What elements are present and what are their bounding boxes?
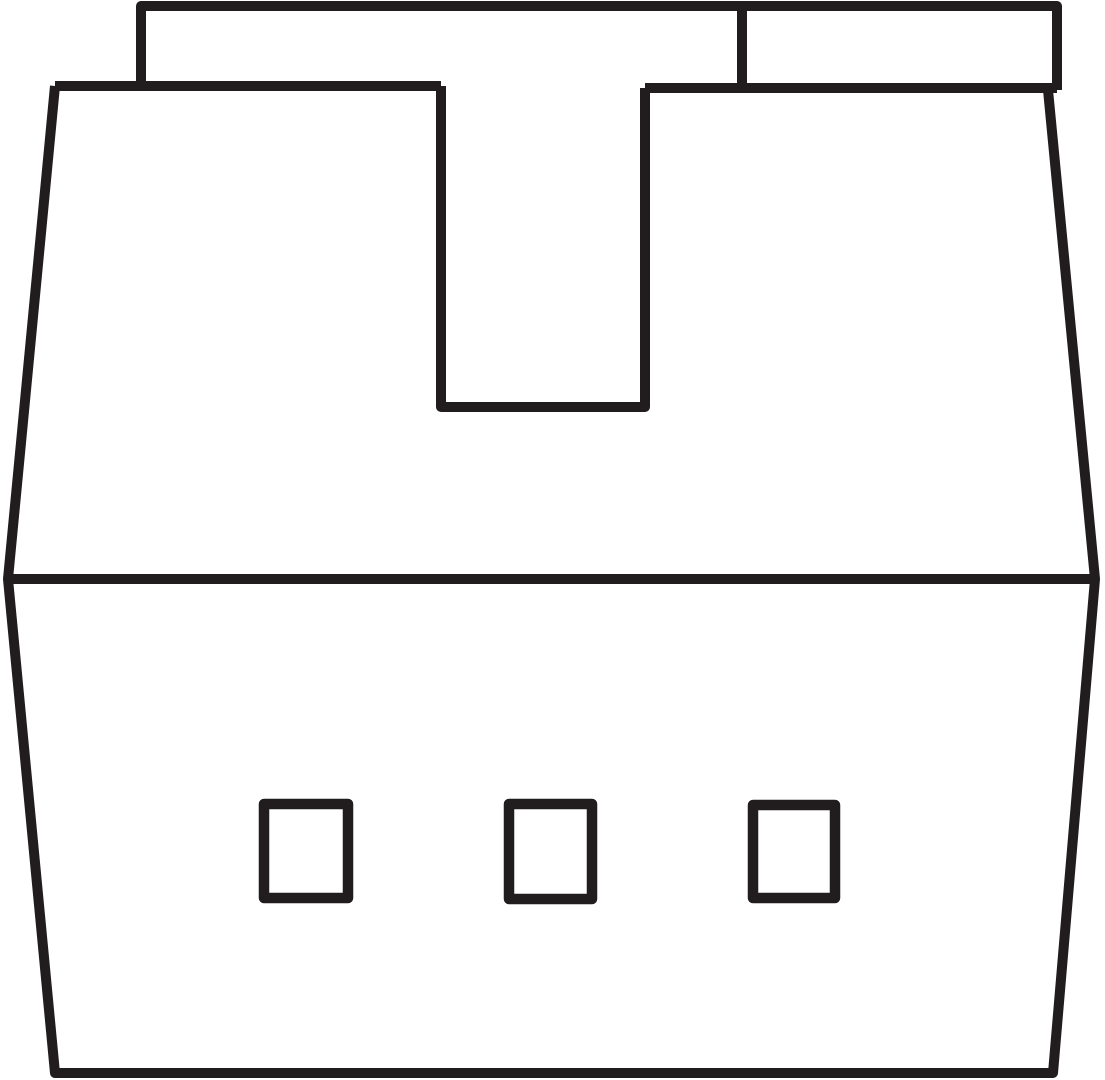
latch-outline [141, 6, 1057, 90]
connector-diagram-canvas [0, 0, 1105, 1080]
pin-opening-right [753, 805, 835, 898]
pin-opening-left [264, 804, 348, 898]
latch-slot-outline [441, 86, 645, 407]
connector-diagram-svg [0, 0, 1105, 1080]
pin-opening-middle [509, 804, 592, 899]
